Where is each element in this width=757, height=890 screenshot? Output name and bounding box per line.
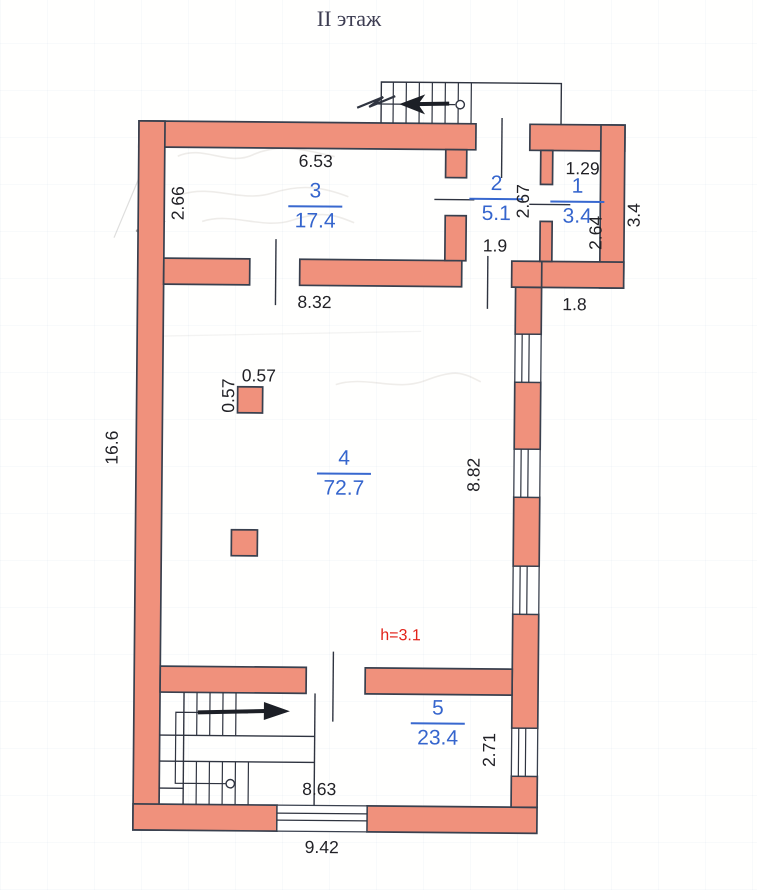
dimension-room3-depth: 2.66	[168, 186, 189, 220]
break-line-icon	[357, 96, 395, 108]
dimension-room2-depth: 2.67	[513, 184, 534, 218]
room-number: 5	[411, 696, 465, 724]
room-number: 4	[317, 446, 371, 474]
dimension-room3-width: 6.53	[299, 151, 333, 172]
dimension-annex-offset: 1.8	[562, 294, 587, 315]
dimension-column-width: 0.57	[242, 365, 276, 386]
dimension-room5-width: 8.63	[302, 779, 336, 800]
dimension-left-side: 16.6	[102, 431, 123, 465]
ceiling-height-note: h=3.1	[380, 627, 421, 645]
dimension-bottom-width: 9.42	[305, 837, 339, 858]
window-icon	[515, 334, 541, 382]
dimension-room2-bottom: 1.9	[483, 235, 508, 256]
room-area: 23.4	[411, 724, 465, 750]
windows-layer	[277, 332, 541, 833]
stair-direction-arrow-icon	[175, 701, 290, 788]
stair-direction-arrow-icon	[375, 94, 464, 115]
window-icon	[511, 728, 537, 776]
dimension-room5-right: 2.71	[479, 733, 500, 767]
dimension-hall-right: 8.82	[463, 458, 484, 492]
room-label-3: 3 17.4	[288, 179, 342, 233]
window-icon	[277, 805, 367, 832]
room-area: 17.4	[288, 207, 342, 233]
room-label-5: 5 23.4	[411, 696, 465, 750]
room-area: 72.7	[317, 474, 371, 500]
scanned-floor-plan-page: II этаж	[0, 0, 757, 890]
window-icon	[513, 566, 539, 614]
room-number: 3	[288, 179, 342, 207]
floor-plan: 1 3.4 2 5.1 3 17.4 4 72.7 5 23.4 6.53 2.…	[0, 0, 757, 890]
column-2	[231, 530, 257, 556]
window-icon	[514, 449, 540, 497]
room-label-4: 4 72.7	[317, 446, 371, 500]
top-staircase	[357, 82, 561, 125]
bottom-staircase	[159, 692, 315, 805]
dimension-room1-depth: 2.64	[585, 216, 606, 250]
dimension-column-depth: 0.57	[218, 379, 239, 413]
dimension-room1-width: 1.29	[566, 158, 600, 179]
walls-layer	[133, 121, 625, 834]
dimension-hall-top: 8.32	[297, 292, 331, 313]
dimension-annex-right: 3.4	[624, 203, 645, 228]
column-1	[237, 387, 262, 413]
